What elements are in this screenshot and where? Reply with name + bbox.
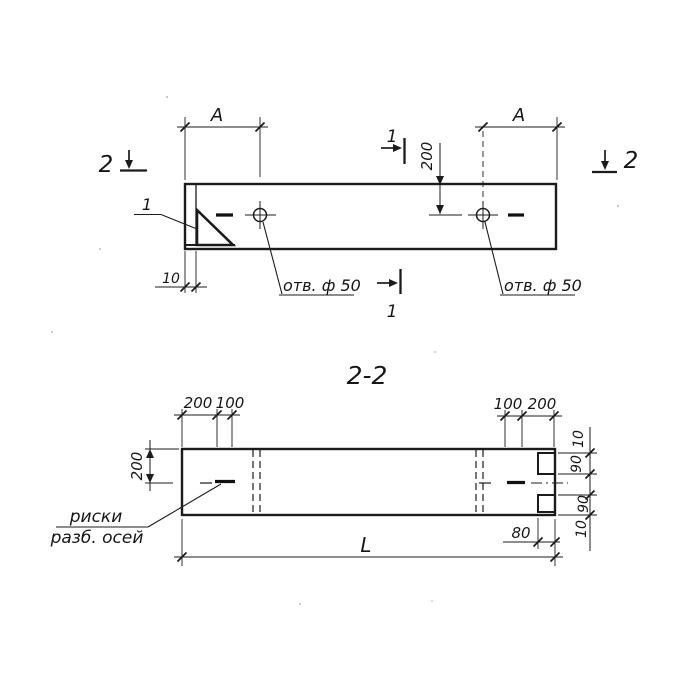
height-200-arrow-bottom (146, 474, 154, 483)
axis-note-line2: разб. осей (50, 528, 144, 548)
section-outline (182, 449, 555, 515)
embedded-insert-bottom (538, 495, 555, 512)
edge-chain-90-top-label: 90 (569, 455, 585, 473)
hole-note-right-leader (485, 222, 503, 294)
embedded-insert-top (538, 453, 555, 474)
axis-note-line1: риски (69, 507, 123, 527)
hole-note-right-label: отв. ф 50 (504, 276, 582, 295)
dim-a-left-label: A (210, 105, 223, 126)
dim-200-arrow-bottom (436, 205, 444, 214)
chain-left-200-label: 200 (184, 394, 213, 412)
edge-chain-10-top-label: 10 (571, 430, 587, 448)
section-2-left-label: 2 (99, 152, 114, 178)
edge-chain-10-bottom-label: 10 (574, 520, 590, 538)
dim-80-label: 80 (511, 524, 530, 542)
edge-chain-90-bottom-label: 90 (576, 495, 592, 513)
chain-left-100-label: 100 (216, 394, 245, 412)
drawing-sheet: 200 A A 2 2 1 1 1 (0, 0, 700, 700)
section-1-bottom-arrowhead (389, 279, 398, 287)
detail-1-leader (161, 215, 197, 230)
section-1-bottom-label: 1 (387, 302, 398, 322)
section-2-right-label: 2 (624, 148, 639, 174)
axis-note-leader (148, 484, 221, 527)
hole-note-left-label: отв. ф 50 (283, 276, 361, 295)
top-view: 200 A A 2 2 1 1 1 (99, 105, 639, 322)
section-view: 2-2 200 100 100 200 (50, 361, 597, 566)
chain-right-100-label: 100 (494, 395, 523, 413)
beam-outline (185, 184, 556, 249)
section-2-left-arrowhead (125, 160, 133, 169)
section-title: 2-2 (347, 361, 388, 390)
dim-a-right-label: A (512, 105, 525, 126)
chain-right-200-label: 200 (528, 395, 557, 413)
height-200-label: 200 (128, 452, 146, 481)
dim-10-label: 10 (162, 271, 180, 287)
section-2-right-arrowhead (601, 161, 609, 170)
detail-1-label: 1 (142, 195, 152, 214)
drawing-canvas: 200 A A 2 2 1 1 1 (0, 0, 700, 700)
height-200-arrow-top (146, 449, 154, 458)
hole-note-left-leader (263, 222, 282, 294)
dim-200-label: 200 (418, 142, 436, 171)
section-1-top-label: 1 (387, 127, 398, 147)
section-1-top-arrowhead (393, 144, 402, 152)
dim-l-label: L (360, 533, 371, 557)
